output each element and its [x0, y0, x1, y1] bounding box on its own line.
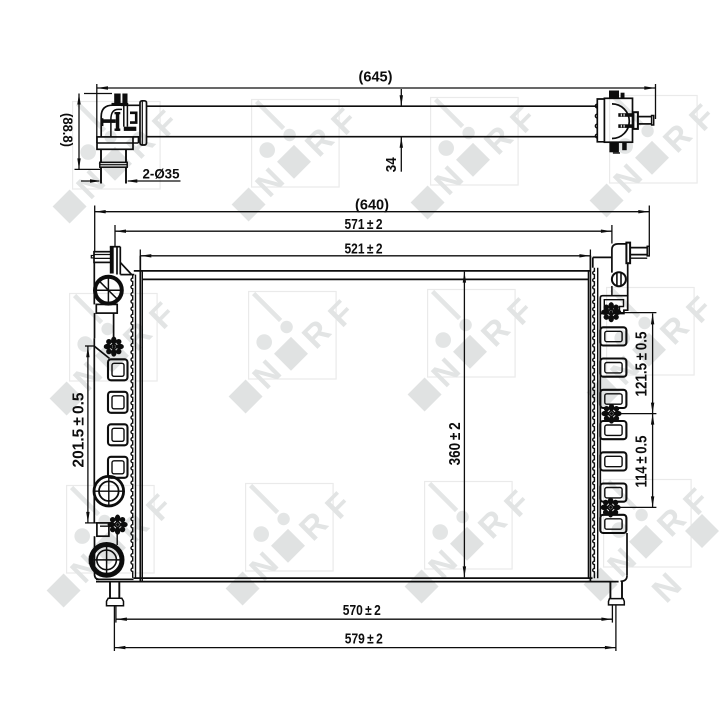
svg-text:360 ± 2: 360 ± 2: [447, 422, 464, 465]
svg-text:579 ± 2: 579 ± 2: [345, 631, 383, 648]
svg-text:571 ± 2: 571 ± 2: [345, 216, 383, 233]
svg-text:114 ± 0.5: 114 ± 0.5: [634, 435, 651, 487]
svg-text:34: 34: [383, 157, 400, 173]
svg-text:570 ± 2: 570 ± 2: [343, 602, 381, 619]
svg-text:121.5 ± 0.5: 121.5 ± 0.5: [634, 331, 651, 396]
svg-text:201.5 ± 0.5: 201.5 ± 0.5: [71, 392, 88, 467]
svg-text:(645): (645): [359, 69, 393, 86]
svg-text:(640): (640): [355, 197, 389, 214]
svg-text:(88.8): (88.8): [60, 113, 75, 147]
svg-text:521 ± 2: 521 ± 2: [345, 240, 383, 257]
svg-text:2-Ø35: 2-Ø35: [143, 166, 180, 182]
